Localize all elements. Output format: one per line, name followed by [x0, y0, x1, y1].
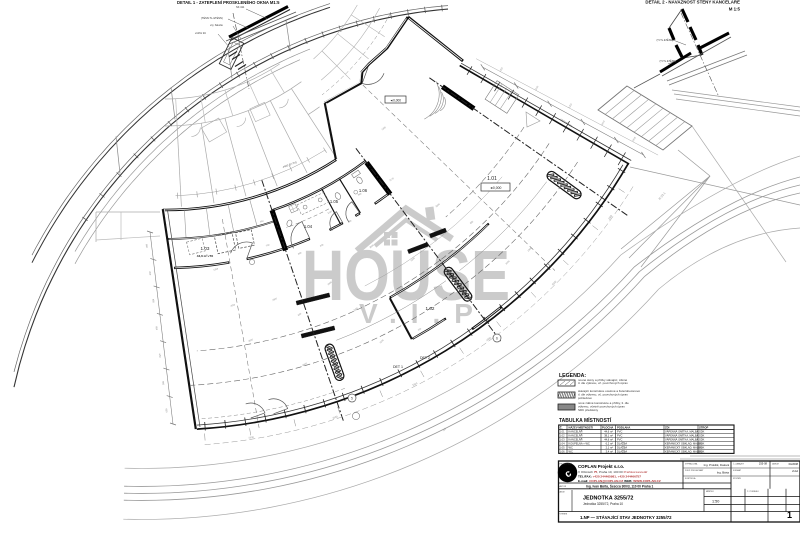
- svg-text:KOUPELNA + WC: KOUPELNA + WC: [569, 442, 590, 446]
- svg-text:1.02: 1.02: [426, 306, 435, 311]
- svg-text:pohledové: pohledové: [578, 396, 592, 400]
- svg-text:SK 411: SK 411: [236, 5, 245, 9]
- svg-text:STUPEŇ: STUPEŇ: [733, 477, 741, 480]
- svg-text:44,6 m²+TX: 44,6 m²+TX: [197, 254, 214, 258]
- svg-text:PODLAHA: PODLAHA: [617, 425, 630, 429]
- svg-text:JEDNOTKA 3255/72: JEDNOTKA 3255/72: [583, 496, 633, 502]
- svg-text:1.05: 1.05: [330, 199, 339, 204]
- svg-text:1.05: 1.05: [560, 446, 566, 450]
- svg-text:38,1 m²: 38,1 m²: [604, 434, 613, 438]
- svg-text:V Olšinách 75, Praha 10, 100 0: V Olšinách 75, Praha 10, 100 00 Pražská …: [578, 470, 648, 474]
- svg-text:◄0,000: ◄0,000: [490, 186, 502, 190]
- svg-text:SDK: SDK: [699, 450, 705, 454]
- svg-text:PROJEKTANT: PROJEKTANT: [560, 463, 573, 466]
- svg-text:◄0,000: ◄0,000: [390, 99, 401, 103]
- svg-text:vnitřní fól.: vnitřní fól.: [195, 31, 207, 35]
- svg-text:PVC: PVC: [617, 430, 622, 434]
- svg-text:1.04: 1.04: [304, 224, 313, 229]
- svg-text:TABULKA MÍSTNOSTÍ: TABULKA MÍSTNOSTÍ: [559, 416, 612, 424]
- svg-text:VYPRACOVAL: VYPRACOVAL: [685, 462, 698, 465]
- svg-text:AKCE: AKCE: [560, 491, 566, 494]
- svg-text:3,4 m²: 3,4 m²: [606, 450, 613, 454]
- svg-text:DET 1: DET 1: [393, 365, 403, 369]
- svg-text:Jednotka 3255/72, Praha 10: Jednotka 3255/72, Praha 10: [583, 502, 623, 506]
- svg-text:tl. dle výkresu, vč. povrchový: tl. dle výkresu, vč. povrchových úprav: [578, 381, 628, 385]
- svg-text:1.06: 1.06: [359, 188, 368, 193]
- svg-text:COPLAN Projekt s.r.o.: COPLAN Projekt s.r.o.: [578, 464, 624, 469]
- svg-text:1.NP — STÁVAJÍCÍ STAV JEDNOT: 1.NP — STÁVAJÍCÍ STAV JEDNOTKY 3255/72: [580, 515, 672, 520]
- svg-text:M 1:5: M 1:5: [729, 7, 741, 12]
- svg-text:PLOCHA: PLOCHA: [602, 425, 613, 429]
- svg-text:SDK: SDK: [699, 430, 705, 434]
- svg-text:PVC: PVC: [617, 434, 622, 438]
- svg-text:WC: WC: [569, 446, 573, 450]
- svg-text:DETAIL 1 - ZATEPLENÍ PROSKLENÉ: DETAIL 1 - ZATEPLENÍ PROSKLENÉHO OKNA M1…: [177, 0, 280, 5]
- svg-text:DET 2: DET 2: [420, 356, 430, 360]
- svg-text:1.01: 1.01: [487, 176, 497, 182]
- svg-text:255-08: 255-08: [759, 462, 768, 466]
- svg-text:VÁPENNÁ OMÍTKA, MALBA: VÁPENNÁ OMÍTKA, MALBA: [665, 430, 699, 434]
- svg-text:STROP: STROP: [699, 425, 708, 429]
- svg-text:KONTROLA: KONTROLA: [685, 477, 696, 480]
- svg-text:KERAMICKÝ OBKLAD, MALBA: KERAMICKÝ OBKLAD, MALBA: [665, 442, 702, 446]
- svg-text:Č. VÝKRESU: Č. VÝKRESU: [747, 490, 759, 493]
- svg-text:(TI.TL.&TĚSN): (TI.TL.&TĚSN): [656, 39, 673, 42]
- svg-text:1.06: 1.06: [560, 450, 566, 454]
- svg-text:DATUM: DATUM: [772, 462, 779, 465]
- svg-text:AUTOR: AUTOR: [560, 485, 567, 488]
- svg-text:6,2 m²: 6,2 m²: [606, 442, 613, 446]
- svg-text:SDK: SDK: [699, 442, 705, 446]
- svg-text:VÝKRES: VÝKRES: [560, 513, 568, 516]
- svg-text:2,1 m²: 2,1 m²: [606, 446, 613, 450]
- svg-text:HOUSE: HOUSE: [302, 237, 510, 316]
- svg-text:FORMÁT: FORMÁT: [733, 469, 742, 472]
- svg-text:SDK: SDK: [699, 434, 705, 438]
- svg-text:6: 6: [496, 337, 498, 341]
- svg-text:44,6 m²: 44,6 m²: [604, 430, 613, 434]
- svg-text:44,6 m²: 44,6 m²: [604, 438, 613, 442]
- svg-text:Ing. Ivan Bárta, Śescca 300/3,: Ing. Ivan Bárta, Śescca 300/3, 110 00 Pr…: [586, 483, 654, 488]
- svg-text:E-mail: COPLAN@COPLAN.CZ WEB:: E-mail: COPLAN@COPLAN.CZ WEB: WWW.COPLAN…: [578, 479, 661, 483]
- svg-text:1:50: 1:50: [712, 500, 719, 504]
- svg-text:MĚřÍTKO: MĚřÍTKO: [706, 490, 714, 493]
- svg-text:KERAMICKÝ OBKLAD, MALBA: KERAMICKÝ OBKLAD, MALBA: [665, 450, 702, 454]
- svg-text:VÁPENNÁ OMÍTKA, MALBA: VÁPENNÁ OMÍTKA, MALBA: [665, 438, 699, 442]
- svg-text:5: 5: [351, 397, 353, 401]
- svg-text:1.03: 1.03: [560, 438, 566, 442]
- svg-text:WC: WC: [569, 450, 573, 454]
- svg-text:SDK: SDK: [699, 438, 705, 442]
- svg-text:TEL/FAX: +420 244465981, +420: TEL/FAX: +420 244465981, +420 244466757: [578, 475, 641, 479]
- svg-text:VÁPENNÁ OMÍTKA, MALBA: VÁPENNÁ OMÍTKA, MALBA: [665, 434, 699, 438]
- svg-text:04/2008: 04/2008: [789, 462, 799, 466]
- svg-text:2xA4: 2xA4: [792, 469, 798, 473]
- svg-text:1.03: 1.03: [201, 246, 210, 251]
- svg-text:Ing. Bárta: Ing. Bárta: [717, 471, 730, 475]
- svg-text:ZODP. PROJEKTANT: ZODP. PROJEKTANT: [685, 469, 704, 472]
- svg-text:SDK předstěny: SDK předstěny: [578, 408, 599, 412]
- svg-text:Č. ZAKÁZKY: Č. ZAKÁZKY: [733, 462, 745, 465]
- svg-text:KERAMICKÝ OBKLAD, MALBA: KERAMICKÝ OBKLAD, MALBA: [665, 446, 702, 450]
- svg-text:1: 1: [787, 510, 792, 520]
- svg-text:vnj. žaluzie: vnj. žaluzie: [210, 23, 223, 27]
- svg-text:SDK: SDK: [699, 446, 705, 450]
- svg-text:1.04: 1.04: [560, 442, 566, 446]
- svg-text:PVC: PVC: [617, 438, 622, 442]
- svg-text:1.01: 1.01: [560, 430, 566, 434]
- svg-text:(TI.TL.&TĚSN): (TI.TL.&TĚSN): [659, 60, 676, 63]
- svg-text:1.02: 1.02: [560, 434, 566, 438]
- svg-text:Ing. Prokšík, Fialová: Ing. Prokšík, Fialová: [704, 463, 730, 467]
- svg-text:DETAIL 2 - NÁVAZNOST STĚNY KAN: DETAIL 2 - NÁVAZNOST STĚNY KANCELÁŘE: [645, 0, 740, 5]
- svg-text:ZDI: ZDI: [665, 425, 670, 429]
